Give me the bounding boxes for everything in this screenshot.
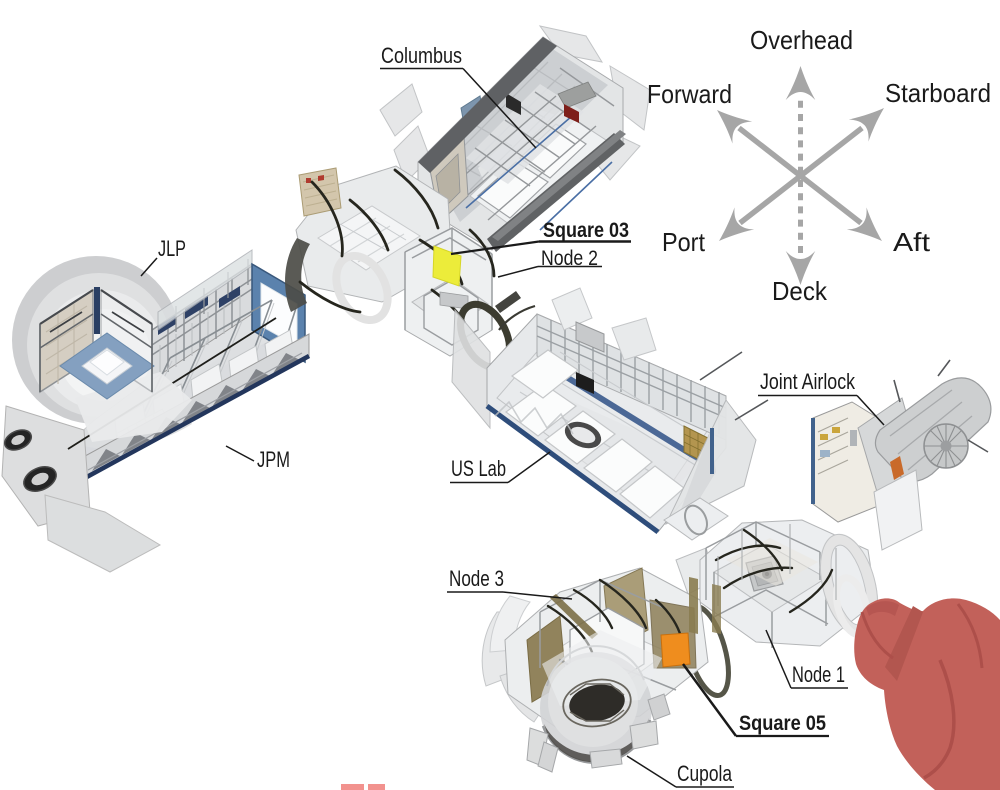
svg-text:Forward: Forward	[647, 79, 732, 109]
svg-text:Node 1: Node 1	[792, 662, 845, 687]
svg-text:US Lab: US Lab	[451, 456, 506, 481]
svg-text:Aft: Aft	[893, 227, 931, 257]
svg-text:Starboard: Starboard	[885, 78, 991, 108]
svg-text:Columbus: Columbus	[381, 43, 462, 68]
svg-text:Port: Port	[662, 227, 706, 257]
svg-text:Joint Airlock: Joint Airlock	[760, 369, 856, 394]
svg-text:Square 05: Square 05	[739, 712, 826, 735]
svg-text:Node 3: Node 3	[449, 566, 504, 591]
svg-text:Square 03: Square 03	[543, 219, 629, 242]
svg-text:Overhead: Overhead	[750, 25, 853, 55]
svg-text:Deck: Deck	[772, 276, 828, 306]
svg-text:JLP: JLP	[158, 236, 186, 261]
svg-text:Cupola: Cupola	[677, 761, 733, 786]
svg-text:JPM: JPM	[257, 447, 290, 472]
